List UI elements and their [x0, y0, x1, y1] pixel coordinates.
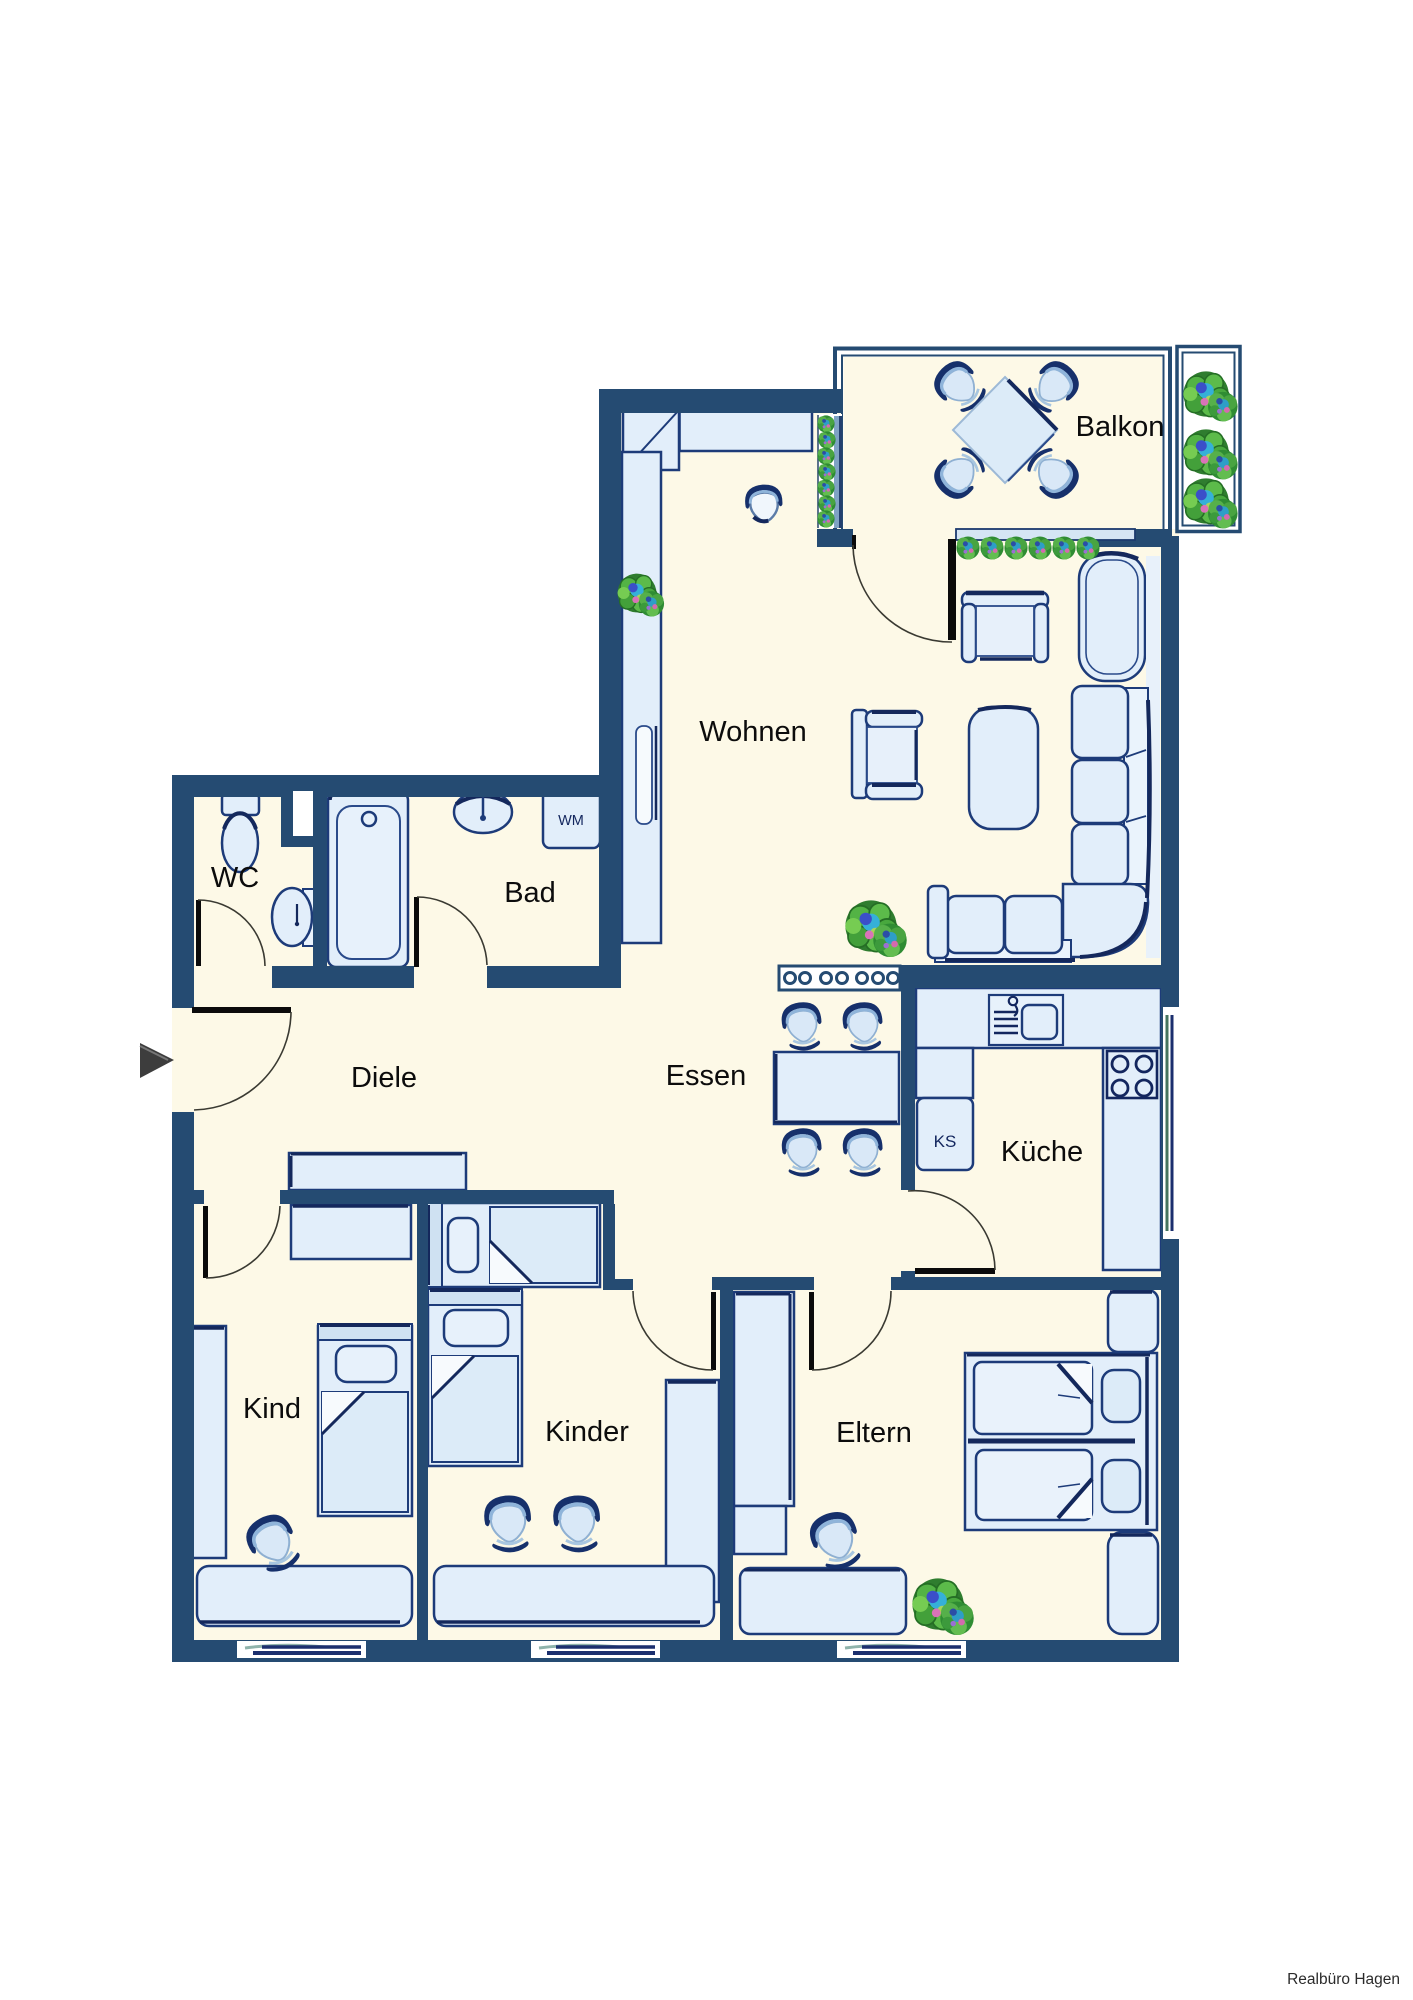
svg-text:Diele: Diele	[351, 1062, 417, 1094]
svg-text:KS: KS	[934, 1132, 957, 1151]
svg-text:Kinder: Kinder	[545, 1416, 629, 1448]
svg-text:Küche: Küche	[1001, 1136, 1083, 1168]
svg-text:WM: WM	[558, 813, 584, 829]
svg-text:Essen: Essen	[666, 1060, 747, 1092]
svg-text:Bad: Bad	[504, 877, 556, 909]
svg-text:Eltern: Eltern	[836, 1417, 912, 1449]
svg-text:Kind: Kind	[243, 1393, 301, 1425]
svg-text:WC: WC	[211, 862, 259, 894]
svg-text:Balkon: Balkon	[1076, 411, 1165, 443]
svg-text:Realbüro Hagen: Realbüro Hagen	[1287, 1971, 1400, 1988]
svg-text:Wohnen: Wohnen	[699, 716, 807, 748]
